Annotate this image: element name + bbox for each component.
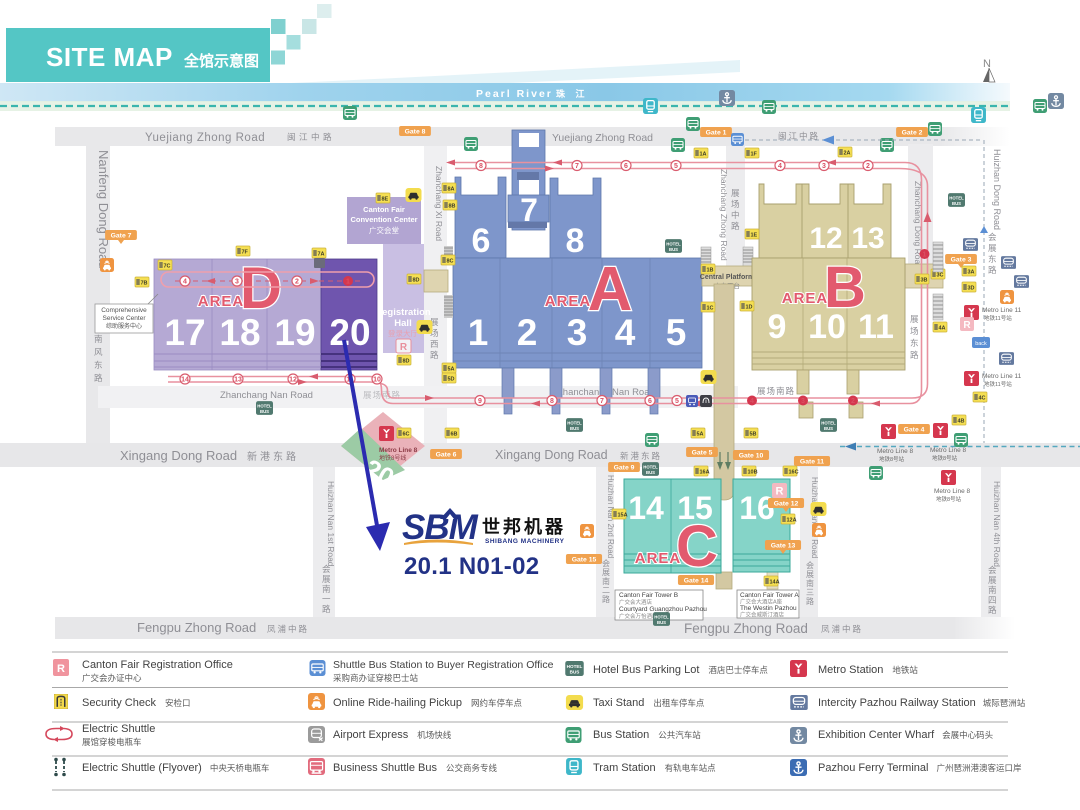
svg-text:Service Center: Service Center xyxy=(103,315,147,322)
svg-text:4: 4 xyxy=(615,312,636,353)
svg-text:Metro Line 11: Metro Line 11 xyxy=(982,373,1022,380)
svg-text:Shuttle Bus Station to Buyer R: Shuttle Bus Station to Buyer Registratio… xyxy=(333,659,554,671)
svg-text:20.1 N01-02: 20.1 N01-02 xyxy=(404,553,539,580)
svg-text:Metro Line 8: Metro Line 8 xyxy=(930,447,967,454)
svg-text:R: R xyxy=(776,486,784,498)
svg-text:闽江中路: 闽江中路 xyxy=(287,132,335,142)
svg-text:5A: 5A xyxy=(448,367,455,373)
svg-text:10B: 10B xyxy=(748,470,758,476)
svg-text:综助服务中心: 综助服务中心 xyxy=(106,322,142,330)
svg-text:Registration: Registration xyxy=(375,307,431,318)
svg-text:Gate 8: Gate 8 xyxy=(405,129,426,136)
svg-text:3A: 3A xyxy=(968,270,975,276)
svg-text:地铁11号站: 地铁11号站 xyxy=(984,380,1012,388)
svg-text:7: 7 xyxy=(600,398,604,405)
svg-text:4C: 4C xyxy=(979,396,986,402)
svg-text:3D: 3D xyxy=(968,286,975,292)
svg-text:4: 4 xyxy=(778,163,782,170)
svg-text:地铁8号站: 地铁8号站 xyxy=(936,495,962,503)
svg-text:Zhanchang Nan Road: Zhanchang Nan Road xyxy=(220,390,313,401)
svg-text:8D: 8D xyxy=(403,359,410,365)
svg-text:Huizhan Nan 4th Road: Huizhan Nan 4th Road xyxy=(992,481,1002,567)
svg-text:17: 17 xyxy=(164,312,205,353)
svg-text:4: 4 xyxy=(750,398,754,405)
svg-text:Metro Line 8: Metro Line 8 xyxy=(934,488,971,495)
svg-text:10: 10 xyxy=(808,308,846,346)
svg-text:Xingang Dong Road: Xingang Dong Road xyxy=(120,448,237,463)
svg-text:1B: 1B xyxy=(707,268,714,274)
svg-text:Canton Fair: Canton Fair xyxy=(363,205,405,214)
svg-text:AREA: AREA xyxy=(635,550,682,567)
svg-text:Metro Line 8: Metro Line 8 xyxy=(379,447,418,454)
svg-text:N: N xyxy=(983,58,991,70)
svg-text:8: 8 xyxy=(566,222,585,260)
svg-text:会展南四路: 会展南四路 xyxy=(988,565,997,615)
svg-text:3: 3 xyxy=(567,312,588,353)
svg-text:1: 1 xyxy=(468,312,489,353)
svg-text:Gate 15: Gate 15 xyxy=(572,557,597,564)
svg-text:Pearl River: Pearl River xyxy=(476,88,553,100)
svg-text:12: 12 xyxy=(809,222,842,255)
svg-text:5: 5 xyxy=(674,163,678,170)
svg-text:2A: 2A xyxy=(844,151,851,157)
svg-text:展场东路: 展场东路 xyxy=(910,314,919,360)
svg-text:广交会堂: 广交会堂 xyxy=(369,225,399,235)
svg-text:Exhibition Center Wharf会展中心码头: Exhibition Center Wharf会展中心码头 xyxy=(818,729,994,741)
svg-text:1C: 1C xyxy=(707,306,714,312)
svg-text:Convention Center: Convention Center xyxy=(350,215,417,224)
svg-text:Intercity Pazhou Railway Stati: Intercity Pazhou Railway Station城际琶洲站 xyxy=(818,697,1026,709)
svg-text:1: 1 xyxy=(346,278,350,285)
svg-text:16C: 16C xyxy=(789,470,799,476)
svg-text:9: 9 xyxy=(768,308,787,346)
svg-text:展场南路: 展场南路 xyxy=(757,386,795,396)
svg-text:登录大厅: 登录大厅 xyxy=(388,328,418,338)
svg-text:广交会威斯汀酒店: 广交会威斯汀酒店 xyxy=(740,611,785,619)
svg-text:3C: 3C xyxy=(937,273,944,279)
svg-text:3: 3 xyxy=(235,278,239,285)
svg-text:地铁8号站: 地铁8号站 xyxy=(932,454,958,462)
svg-text:Metro Station地铁站: Metro Station地铁站 xyxy=(818,664,918,676)
svg-text:采购商办证穿梭巴士站: 采购商办证穿梭巴士站 xyxy=(333,673,419,683)
svg-text:Yuejiang Zhong Road: Yuejiang Zhong Road xyxy=(145,132,265,144)
svg-text:Tram Station有轨电车站点: Tram Station有轨电车站点 xyxy=(593,762,716,774)
svg-text:2: 2 xyxy=(866,163,870,170)
svg-text:SHIBANG MACHINERY: SHIBANG MACHINERY xyxy=(485,538,565,545)
svg-text:3B: 3B xyxy=(921,278,928,284)
svg-text:2: 2 xyxy=(851,398,855,405)
svg-text:Gate 7: Gate 7 xyxy=(111,233,132,240)
svg-text:Fengpu Zhong Road: Fengpu Zhong Road xyxy=(137,620,256,635)
svg-text:7F: 7F xyxy=(242,250,249,256)
svg-text:Electric Shuttle: Electric Shuttle xyxy=(82,723,155,735)
svg-text:Xingang Dong Road: Xingang Dong Road xyxy=(495,448,608,462)
svg-text:广交会大酒店: 广交会大酒店 xyxy=(619,598,653,606)
svg-text:15A: 15A xyxy=(618,513,628,519)
svg-text:14: 14 xyxy=(628,490,664,526)
svg-text:7: 7 xyxy=(520,192,538,228)
svg-text:3: 3 xyxy=(822,163,826,170)
svg-text:Airport Express机场快线: Airport Express机场快线 xyxy=(333,729,452,741)
svg-text:展馆穿梭电瓶车: 展馆穿梭电瓶车 xyxy=(82,737,142,747)
svg-text:5B: 5B xyxy=(750,432,757,438)
svg-text:Gate 3: Gate 3 xyxy=(951,257,972,264)
svg-text:The Westin Pazhou: The Westin Pazhou xyxy=(740,605,797,612)
svg-text:6: 6 xyxy=(648,398,652,405)
svg-text:back: back xyxy=(975,341,987,347)
svg-text:Fengpu Zhong Road: Fengpu Zhong Road xyxy=(684,621,808,636)
svg-text:世邦机器: 世邦机器 xyxy=(482,516,566,537)
svg-text:会展南三路: 会展南三路 xyxy=(806,560,814,606)
svg-text:Gate 11: Gate 11 xyxy=(800,459,824,466)
svg-text:16A: 16A xyxy=(700,470,710,476)
svg-text:7C: 7C xyxy=(164,264,171,270)
svg-text:11: 11 xyxy=(858,308,894,346)
svg-text:Gate 12: Gate 12 xyxy=(774,501,799,508)
svg-text:R: R xyxy=(400,342,408,353)
svg-text:地铁8号站: 地铁8号站 xyxy=(879,455,905,463)
svg-text:1: 1 xyxy=(923,251,927,258)
svg-text:Gate 13: Gate 13 xyxy=(771,543,796,550)
svg-text:6B: 6B xyxy=(451,432,458,438)
svg-text:展场中路: 展场中路 xyxy=(731,188,740,231)
svg-text:Comprehensive: Comprehensive xyxy=(101,307,147,314)
svg-text:Canton Fair Tower B: Canton Fair Tower B xyxy=(619,592,678,599)
svg-text:Zhanchang Xi Road: Zhanchang Xi Road xyxy=(434,166,444,241)
svg-text:6: 6 xyxy=(624,163,628,170)
svg-text:4B: 4B xyxy=(958,419,965,425)
svg-text:5: 5 xyxy=(675,398,679,405)
svg-text:8: 8 xyxy=(550,398,554,405)
svg-text:AREA: AREA xyxy=(545,293,592,310)
svg-text:Business Shuttle Bus公交商务专线: Business Shuttle Bus公交商务专线 xyxy=(333,762,497,774)
svg-text:Gate 14: Gate 14 xyxy=(684,578,709,585)
svg-text:13: 13 xyxy=(234,376,242,383)
svg-text:7: 7 xyxy=(575,163,579,170)
svg-text:Gate 2: Gate 2 xyxy=(902,130,923,137)
svg-text:4A: 4A xyxy=(939,326,946,332)
svg-text:Gate 4: Gate 4 xyxy=(904,427,925,434)
svg-text:12: 12 xyxy=(289,376,297,383)
svg-text:凤浦中路: 凤浦中路 xyxy=(267,624,309,634)
svg-text:19: 19 xyxy=(274,312,315,353)
svg-text:8C: 8C xyxy=(447,259,454,265)
svg-text:全馆示意图: 全馆示意图 xyxy=(183,52,259,70)
svg-text:Huizhan Nan 3rd Road: Huizhan Nan 3rd Road xyxy=(810,477,819,558)
svg-text:Yuejiang Zhong Road: Yuejiang Zhong Road xyxy=(552,132,653,144)
svg-text:R: R xyxy=(57,663,65,675)
svg-text:Hall: Hall xyxy=(394,318,411,329)
svg-text:Huizhan Nan 1st Road: Huizhan Nan 1st Road xyxy=(326,481,336,567)
svg-text:13: 13 xyxy=(851,222,884,255)
svg-text:R: R xyxy=(963,320,971,331)
svg-text:16: 16 xyxy=(739,490,775,526)
svg-text:5D: 5D xyxy=(448,377,455,383)
svg-text:凤浦中路: 凤浦中路 xyxy=(821,624,863,634)
svg-text:6C: 6C xyxy=(403,432,410,438)
svg-text:Taxi Stand出租车停车点: Taxi Stand出租车停车点 xyxy=(593,697,705,709)
svg-text:1A: 1A xyxy=(700,152,707,158)
svg-text:Hotel Bus Parking Lot酒店巴士停车点: Hotel Bus Parking Lot酒店巴士停车点 xyxy=(593,664,768,676)
svg-text:7A: 7A xyxy=(318,252,325,258)
svg-text:10: 10 xyxy=(373,376,381,383)
svg-text:会展南二路: 会展南二路 xyxy=(602,558,610,604)
svg-text:广交会办证中心: 广交会办证中心 xyxy=(82,673,142,683)
svg-text:2: 2 xyxy=(517,312,538,353)
svg-text:Canton Fair Registration Offic: Canton Fair Registration Office xyxy=(82,659,233,671)
svg-text:14A: 14A xyxy=(770,580,780,586)
svg-text:8A: 8A xyxy=(448,187,455,193)
svg-text:AREA: AREA xyxy=(198,293,245,310)
svg-text:Metro Line 11: Metro Line 11 xyxy=(982,307,1022,314)
svg-text:14: 14 xyxy=(181,376,189,383)
svg-text:Zhanchang Zhong Road: Zhanchang Zhong Road xyxy=(719,169,729,261)
svg-text:Central Platform: Central Platform xyxy=(700,274,754,281)
svg-text:9: 9 xyxy=(478,398,482,405)
svg-text:Online Ride-hailing Pickup网约车停: Online Ride-hailing Pickup网约车停车点 xyxy=(333,697,523,709)
svg-text:5A: 5A xyxy=(697,432,704,438)
svg-text:Gate 5: Gate 5 xyxy=(692,450,713,457)
svg-text:闽江中路: 闽江中路 xyxy=(778,131,820,141)
svg-text:新港东路: 新港东路 xyxy=(247,450,299,463)
svg-text:8E: 8E xyxy=(382,197,389,203)
svg-text:Gate 10: Gate 10 xyxy=(739,453,764,460)
svg-text:新港东路: 新港东路 xyxy=(620,451,662,461)
svg-text:SITE MAP: SITE MAP xyxy=(46,42,173,72)
svg-text:珠 江: 珠 江 xyxy=(556,88,589,99)
svg-text:Pazhou Ferry Terminal广州琶洲港澳客运口: Pazhou Ferry Terminal广州琶洲港澳客运口岸 xyxy=(818,762,1022,774)
svg-text:Bus Station公共汽车站: Bus Station公共汽车站 xyxy=(593,729,701,741)
svg-text:Zhanchang: Zhanchang xyxy=(557,387,605,398)
svg-text:1E: 1E xyxy=(751,233,758,239)
svg-text:20: 20 xyxy=(329,312,370,353)
svg-text:8B: 8B xyxy=(449,204,456,210)
svg-text:8D: 8D xyxy=(413,278,420,284)
svg-text:AREA: AREA xyxy=(782,290,829,307)
svg-text:7B: 7B xyxy=(141,281,148,287)
svg-text:Gate 6: Gate 6 xyxy=(436,452,457,459)
svg-text:广交会万怡酒店: 广交会万怡酒店 xyxy=(619,612,658,620)
svg-text:会展南一路: 会展南一路 xyxy=(322,564,331,614)
svg-text:Nanfeng Dong Road: Nanfeng Dong Road xyxy=(96,150,111,269)
svg-text:Canton Fair Tower A: Canton Fair Tower A xyxy=(740,592,799,599)
svg-text:Courtyard Guangzhou Pazhou: Courtyard Guangzhou Pazhou xyxy=(619,606,707,613)
svg-text:地铁11号站: 地铁11号站 xyxy=(984,314,1012,322)
svg-text:18: 18 xyxy=(219,312,260,353)
svg-text:12A: 12A xyxy=(787,518,797,524)
svg-text:4: 4 xyxy=(183,278,187,285)
svg-text:2: 2 xyxy=(295,278,299,285)
svg-text:3: 3 xyxy=(801,398,805,405)
svg-text:Metro Line 8: Metro Line 8 xyxy=(877,448,914,455)
svg-text:C: C xyxy=(676,514,718,579)
svg-text:Electric Shuttle (Flyover)中央天桥: Electric Shuttle (Flyover)中央天桥电瓶车 xyxy=(82,762,269,774)
svg-text:6: 6 xyxy=(472,222,491,260)
svg-text:Huizhan Dong Road: Huizhan Dong Road xyxy=(992,149,1002,230)
svg-text:Gate 9: Gate 9 xyxy=(614,465,635,472)
svg-text:5: 5 xyxy=(666,312,687,353)
svg-text:8: 8 xyxy=(479,163,483,170)
svg-text:1D: 1D xyxy=(746,305,753,311)
svg-text:Security Check安检口: Security Check安检口 xyxy=(82,697,191,709)
svg-text:Gate 1: Gate 1 xyxy=(706,130,727,137)
svg-text:1F: 1F xyxy=(751,152,758,158)
svg-text:会展东路: 会展东路 xyxy=(988,232,997,275)
